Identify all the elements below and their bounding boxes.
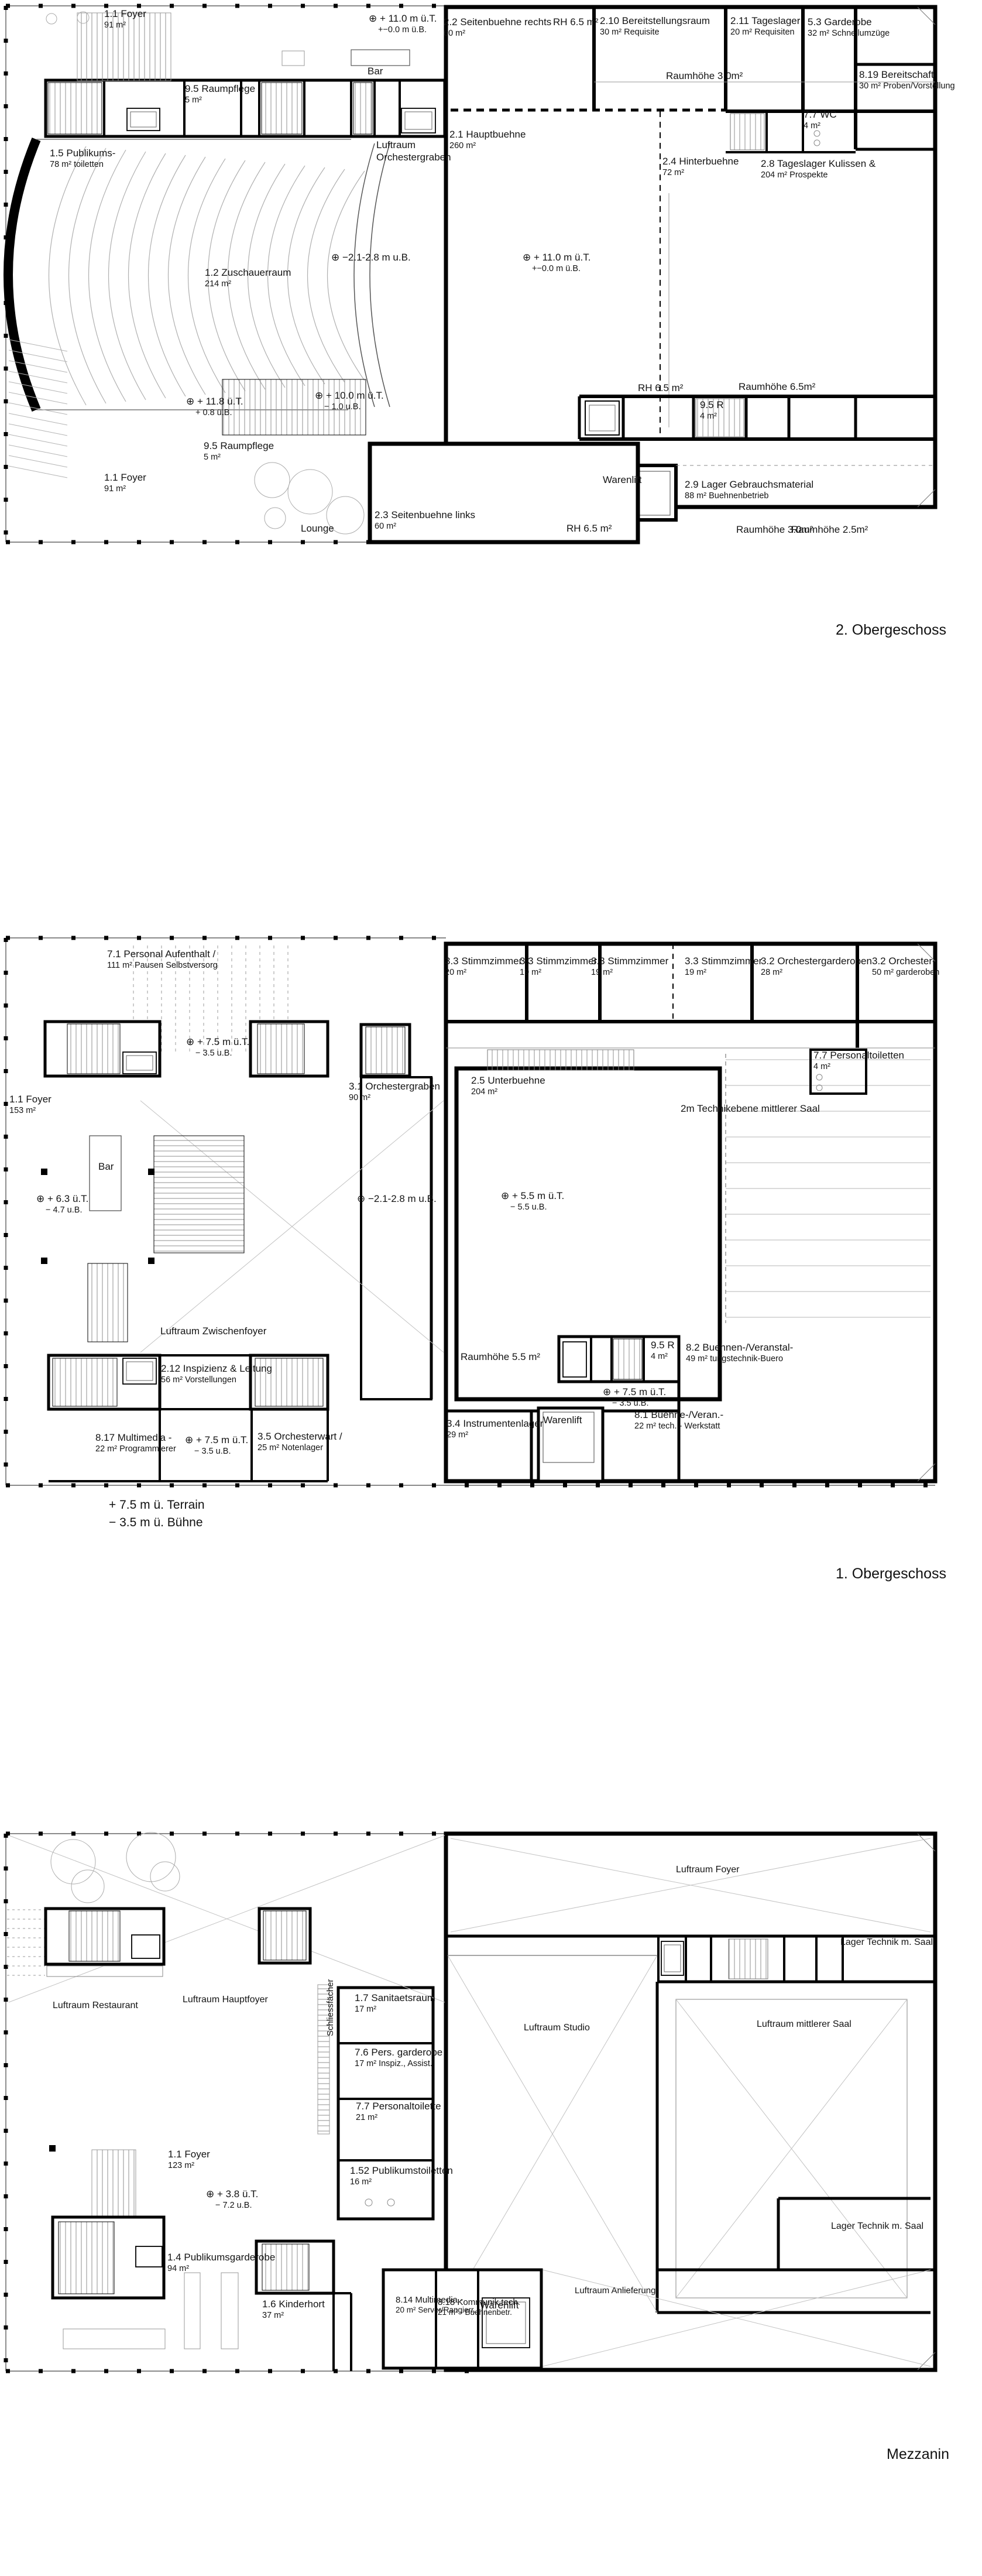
- room-label: 8.1 Buehne-/Veran.-22 m² tech. - Werksta…: [634, 1409, 723, 1431]
- room-label: 1.2 Zuschauerraum214 m²: [205, 267, 291, 289]
- elevation-marker: ⊕ + 7.5 m ü.T.− 3.5 u.B.: [603, 1386, 666, 1409]
- room-label: 7.7 WC4 m²: [804, 109, 837, 131]
- room-label: 1.5 Publikums-78 m² toiletten: [50, 148, 115, 170]
- room-label: Raumhöhe 6.5m²: [739, 381, 815, 393]
- room-label: 2.1 Hauptbuehne260 m²: [449, 129, 526, 151]
- room-label: 3.1 Orchestergraben90 m²: [349, 1081, 440, 1103]
- room-label: 2.11 Tageslager20 m² Requisiten: [730, 15, 800, 37]
- caption-line-terrain: + 7.5 m ü. Terrain: [109, 1496, 205, 1514]
- room-label: Warenlift: [603, 474, 641, 487]
- room-label: 2.5 Unterbuehne204 m²: [471, 1075, 545, 1097]
- room-label: RH 6.5 m²: [553, 16, 598, 29]
- room-label: 7.1 Personal Aufenthalt /111 m² Pausen S…: [107, 948, 218, 971]
- room-label: Raumhöhe 2.5m²: [791, 524, 868, 536]
- room-label: 2.9 Lager Gebrauchsmaterial88 m² Buehnen…: [685, 479, 813, 501]
- level-caption: + 7.5 m ü. Terrain − 3.5 m ü. Bühne: [109, 1496, 205, 1532]
- room-label: Warenlift: [543, 1414, 582, 1427]
- elevation-marker: ⊕ −2.1-2.8 m u.B.: [357, 1193, 437, 1205]
- room-label: 9.5 Raumpflege5 m²: [204, 440, 274, 463]
- labels-overlay: 1.1 Foyer91 m²9.5 Raumpflege5 m²1.5 Publ…: [0, 0, 982, 2576]
- room-label: 3.3 Stimmzimmer20 m²: [445, 955, 522, 978]
- room-label: 3.4 Instrumentenlager29 m²: [447, 1418, 543, 1440]
- room-label: RH 6.5 m²: [566, 523, 612, 535]
- room-label: 1.7 Sanitaetsraum17 m²: [355, 1992, 435, 2015]
- elevation-marker: ⊕ + 11.0 m ü.T.+−0.0 m ü.B.: [369, 13, 437, 35]
- room-label: Luftraum Anlieferung: [575, 2286, 655, 2296]
- room-label: 2.3 Seitenbuehne links60 m²: [375, 509, 475, 532]
- room-label: 1.1 Foyer153 m²: [9, 1094, 51, 1116]
- elevation-marker: ⊕ −2.1-2.8 m u.B.: [331, 252, 411, 264]
- room-label: 9.5 Raumpflege5 m²: [185, 83, 255, 105]
- room-label: Luftraum Studio: [524, 2022, 590, 2034]
- room-label: Luftraum mittlerer Saal: [757, 2019, 851, 2030]
- room-label: 1.1 Foyer91 m²: [104, 8, 146, 30]
- room-label: 9.5 R4 m²: [651, 1340, 675, 1362]
- page: { "document_type": "architectural floor …: [0, 0, 982, 2576]
- elevation-marker: ⊕ + 11.0 m ü.T.+−0.0 m ü.B.: [523, 252, 590, 274]
- room-label: 1.1 Foyer91 m²: [104, 472, 146, 494]
- room-label: 7.7 Personaltoiletten4 m²: [813, 1050, 904, 1072]
- room-label: Lager Technik m. Saal: [840, 1937, 933, 1948]
- room-label: 8.17 Multimedia -22 m² Programmierer: [95, 1432, 176, 1454]
- room-label: 7.7 Personaltoilette21 m²: [356, 2101, 441, 2123]
- room-label: Warenlift: [480, 2300, 519, 2312]
- room-label: 9.5 R4 m²: [700, 399, 724, 422]
- elevation-marker: ⊕ + 6.3 ü.T.− 4.7 u.B.: [36, 1193, 88, 1215]
- room-label: 8.2 Buehnen-/Veranstal-49 m² tungstechni…: [686, 1342, 793, 1364]
- floor-title-1og: 1. Obergeschoss: [836, 1566, 946, 1582]
- room-label: 1.4 Publikumsgarderobe94 m²: [167, 2252, 275, 2274]
- room-label: Luftraum Restaurant: [53, 2000, 138, 2012]
- floor-title-mezzanin: Mezzanin: [887, 2446, 949, 2463]
- room-label: RH 6.5 m²: [638, 382, 683, 395]
- room-label: 1.52 Publikumstoiletten16 m²: [350, 2165, 453, 2187]
- room-label: Lager Technik m. Saal: [831, 2221, 923, 2232]
- room-label: 5.3 Garderobe32 m² Schnellumzüge: [808, 16, 890, 39]
- floor-title-2og: 2. Obergeschoss: [836, 622, 946, 639]
- room-label: 2.12 Inspizienz & Leitung56 m² Vorstellu…: [161, 1363, 272, 1385]
- room-label: 2.2 Seitenbuehne rechts60 m²: [444, 16, 551, 39]
- room-label: Schliessfächer: [325, 1979, 336, 2036]
- room-label: Luftraum Foyer: [676, 1864, 739, 1876]
- room-label: 3.2 Orchester-50 m² garderoben: [872, 955, 939, 978]
- caption-line-buehne: − 3.5 m ü. Bühne: [109, 1514, 205, 1532]
- room-label: 2.10 Bereitstellungsraum30 m² Requisite: [600, 15, 710, 37]
- room-label: 3.3 Stimmzimmer19 m²: [520, 955, 597, 978]
- room-label: 3.2 Orchestergarderoben28 m²: [761, 955, 872, 978]
- elevation-marker: ⊕ + 11.8 ü.T.+ 0.8 ü.B.: [186, 396, 243, 418]
- room-label: Lounge: [301, 523, 334, 535]
- room-label: 1.6 Kinderhort37 m²: [262, 2298, 325, 2321]
- room-label: 3.5 Orchesterwart /25 m² Notenlager: [257, 1431, 342, 1453]
- room-label: 7.6 Pers. garderobe17 m² Inspiz., Assist…: [355, 2047, 442, 2069]
- room-label: 2.4 Hinterbuehne72 m²: [662, 156, 739, 178]
- room-label: 3.3 Stimmzimmer19 m²: [591, 955, 668, 978]
- room-label: 2.8 Tageslager Kulissen &204 m² Prospekt…: [761, 158, 875, 180]
- room-label: LuftraumOrchestergraben: [376, 139, 451, 163]
- room-label: Bar: [368, 66, 383, 78]
- elevation-marker: ⊕ + 5.5 m ü.T.− 5.5 u.B.: [501, 1190, 564, 1212]
- room-label: 1.1 Foyer123 m²: [168, 2149, 210, 2171]
- room-label: Raumhöhe 5.5 m²: [461, 1351, 540, 1364]
- elevation-marker: ⊕ + 7.5 m ü.T.− 3.5 u.B.: [186, 1036, 249, 1059]
- room-label: 2m Technikebene mittlerer Saal: [681, 1103, 820, 1115]
- room-label: 8.19 Bereitschaft30 m² Proben/Vorstellun…: [859, 69, 955, 91]
- room-label: Raumhöhe 3.0m²: [666, 70, 743, 83]
- room-label: Luftraum Zwischenfoyer: [160, 1325, 266, 1338]
- room-label: 3.3 Stimmzimmer19 m²: [685, 955, 762, 978]
- elevation-marker: ⊕ + 3.8 ü.T.− 7.2 u.B.: [206, 2188, 258, 2211]
- elevation-marker: ⊕ + 10.0 m ü.T.− 1.0 u.B.: [315, 390, 384, 412]
- room-label: Bar: [98, 1161, 114, 1173]
- room-label: Luftraum Hauptfoyer: [183, 1994, 268, 2006]
- elevation-marker: ⊕ + 7.5 m ü.T.− 3.5 u.B.: [185, 1434, 248, 1457]
